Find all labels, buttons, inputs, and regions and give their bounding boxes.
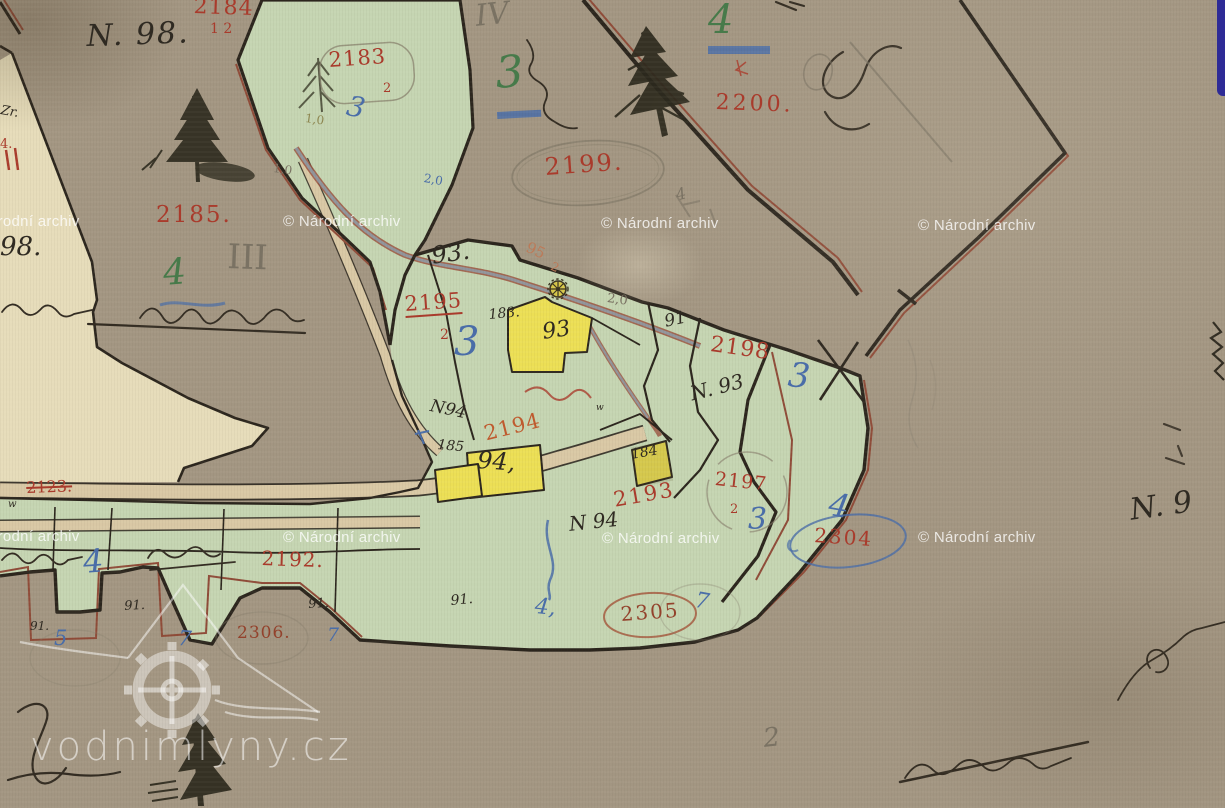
label-n9-right: N. 9 (1128, 487, 1194, 525)
class-3-south: 3 (748, 505, 767, 535)
map-artwork (0, 0, 1225, 808)
label-94-house: 94, (476, 448, 516, 475)
archive-watermark-7: © Národní archiv (918, 529, 1036, 546)
parcel-2306: 2306. (237, 625, 291, 642)
parcel-2195: 2195 (404, 290, 463, 318)
class-3-top: 3 (494, 50, 525, 96)
parcel-2197: 2197 (714, 470, 768, 494)
parcel-2184: 2184 (193, 0, 254, 20)
parcel-2197-sub: 2 (730, 503, 738, 516)
archive-watermark-1: © Národní archiv (283, 213, 401, 230)
archive-watermark-2: © Národní archiv (601, 215, 719, 232)
parcel-2305: 2305 (620, 600, 680, 624)
parcel-2184-sub: 1 2 (210, 22, 232, 36)
mark-10-a: 1,0 (304, 112, 325, 127)
parcel-2123: 2123. (26, 478, 72, 496)
building-94-annex (435, 464, 482, 502)
class-3-east: 3 (786, 358, 811, 394)
mark-7-strip-a: 7 (177, 628, 192, 650)
archive-watermark-0: © Národní archiv (0, 213, 80, 230)
parcel-2200: 2200. (715, 92, 794, 117)
parcel-2199: 2199. (544, 150, 624, 179)
mark-7-strip-b: 7 (327, 626, 339, 645)
right-edge-ui-fragment[interactable] (1217, 0, 1225, 96)
archive-watermark-3: © Národní archiv (918, 217, 1036, 234)
label-91-strip-d: 91. (450, 592, 473, 608)
label-93-house: 93 (541, 318, 572, 344)
roman-iv: IV (474, 0, 510, 32)
parcel-2195-sub: 2 (440, 328, 449, 342)
mark-2-bottom: 2 (762, 724, 781, 752)
archive-watermark-5: © Národní archiv (283, 529, 401, 546)
label-91-upper: 91 (663, 310, 688, 331)
mark-20-mid: 2,0 (606, 292, 628, 308)
roman-iii: III (227, 240, 268, 275)
label-183: 183. (488, 305, 520, 322)
parcel-2183-sub: 2 (383, 82, 391, 95)
archive-watermark-6: © Národní archiv (602, 530, 720, 547)
label-w-mid: w (596, 404, 604, 413)
site-watermark-text: vodnimlyny.cz (30, 724, 352, 770)
class-4-mid: 4 (162, 254, 187, 292)
label-zr: Zr. (0, 104, 20, 120)
label-91-strip-a: 91. (124, 599, 145, 613)
label-91-strip-c: 91. (30, 620, 49, 632)
class-4-strip: 4 (82, 545, 105, 578)
class-3-central: 3 (454, 322, 479, 362)
label-185: 185 (437, 438, 465, 454)
map-scan: N. 98.98.Zr.93.183.93N9418594,184N 9491N… (0, 0, 1225, 808)
label-w-road: w (8, 500, 17, 510)
mark-10-b: 1,0 (272, 162, 293, 177)
label-n98: N. 98. (86, 18, 190, 52)
class-4-mid-strip: 4, (534, 596, 557, 620)
archive-watermark-4: © Národní archiv (0, 528, 80, 545)
parcel-2192: 2192. (261, 548, 324, 570)
parcel-2185: 2185. (156, 204, 232, 227)
mark-20-band: 2,0 (423, 172, 444, 187)
class-4-top: 4 (708, 0, 733, 40)
label-98: 98. (0, 234, 41, 260)
label-93-dot: 93. (430, 239, 471, 268)
mark-5-strip: 5 (54, 628, 67, 649)
mark-red-left: 4. (0, 138, 12, 151)
label-91-strip-b: 91. (308, 597, 329, 611)
parcel-2183: 2183 (328, 46, 387, 71)
parcel-2304: 2304 (814, 525, 874, 549)
